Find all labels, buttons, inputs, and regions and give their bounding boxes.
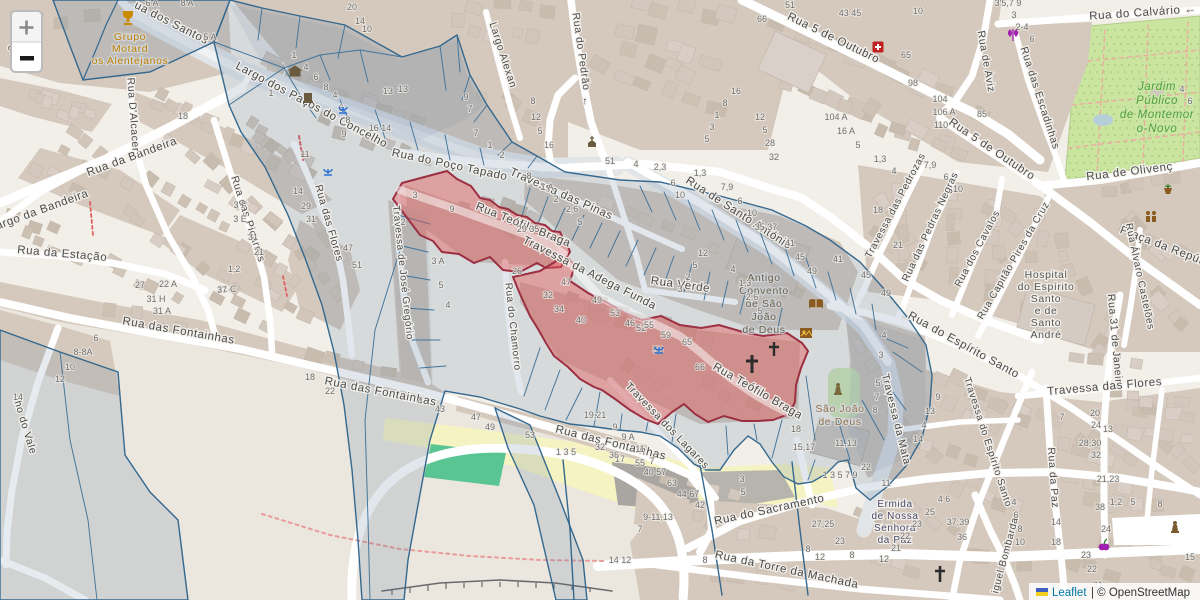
svg-text:7: 7 bbox=[1059, 412, 1064, 422]
svg-text:5: 5 bbox=[438, 280, 443, 290]
svg-text:43 45: 43 45 bbox=[839, 8, 862, 18]
svg-text:os Alentejanos: os Alentejanos bbox=[92, 55, 169, 67]
svg-text:12: 12 bbox=[755, 112, 765, 122]
svg-text:1,2: 1,2 bbox=[228, 264, 241, 274]
svg-text:49: 49 bbox=[881, 288, 891, 298]
svg-text:5: 5 bbox=[1130, 497, 1135, 507]
svg-text:4: 4 bbox=[730, 264, 735, 274]
svg-text:7: 7 bbox=[637, 524, 642, 534]
svg-text:8 A: 8 A bbox=[180, 0, 193, 8]
svg-text:10: 10 bbox=[362, 24, 372, 34]
svg-text:66: 66 bbox=[695, 362, 705, 372]
svg-text:98: 98 bbox=[908, 78, 918, 88]
svg-text:4: 4 bbox=[417, 396, 422, 406]
svg-text:36: 36 bbox=[957, 532, 967, 542]
svg-text:14: 14 bbox=[293, 186, 303, 196]
svg-text:13: 13 bbox=[925, 406, 935, 416]
svg-text:27,25: 27,25 bbox=[812, 519, 835, 529]
svg-text:45: 45 bbox=[861, 270, 871, 280]
svg-text:André: André bbox=[1030, 329, 1061, 341]
svg-text:22: 22 bbox=[1087, 564, 1097, 574]
svg-text:51: 51 bbox=[352, 260, 362, 270]
svg-text:4: 4 bbox=[303, 62, 308, 72]
svg-text:3: 3 bbox=[709, 122, 714, 132]
svg-text:Leaflet: Leaflet bbox=[1052, 587, 1087, 599]
svg-text:31: 31 bbox=[248, 232, 258, 242]
svg-text:66: 66 bbox=[757, 14, 767, 24]
svg-text:31 A: 31 A bbox=[153, 306, 171, 316]
svg-text:16 A: 16 A bbox=[837, 126, 855, 136]
svg-text:1: 1 bbox=[268, 88, 273, 98]
svg-text:de Deus: de Deus bbox=[818, 416, 861, 428]
svg-text:8: 8 bbox=[345, 115, 350, 125]
svg-text:32: 32 bbox=[1091, 450, 1101, 460]
svg-text:1 A: 1 A bbox=[540, 182, 553, 192]
svg-text:4: 4 bbox=[881, 330, 886, 340]
svg-text:21,23: 21,23 bbox=[1097, 474, 1120, 484]
svg-text:do Espírito: do Espírito bbox=[1018, 281, 1075, 293]
svg-text:5: 5 bbox=[577, 217, 582, 227]
svg-text:4: 4 bbox=[332, 90, 337, 100]
svg-text:53: 53 bbox=[525, 430, 535, 440]
svg-text:46: 46 bbox=[625, 318, 635, 328]
svg-text:5: 5 bbox=[537, 126, 542, 136]
svg-text:10: 10 bbox=[747, 208, 757, 218]
svg-text:1: 1 bbox=[487, 140, 492, 150]
svg-text:29 35: 29 35 bbox=[517, 224, 540, 234]
svg-text:6: 6 bbox=[1029, 34, 1034, 44]
svg-text:55: 55 bbox=[644, 320, 654, 330]
svg-text:5: 5 bbox=[875, 378, 880, 388]
svg-text:4: 4 bbox=[1179, 84, 1184, 94]
svg-text:23: 23 bbox=[1081, 550, 1091, 560]
svg-text:47: 47 bbox=[343, 243, 353, 253]
svg-text:e de: e de bbox=[1035, 305, 1058, 317]
svg-text:Grupo: Grupo bbox=[114, 31, 146, 43]
svg-text:10: 10 bbox=[953, 184, 963, 194]
svg-text:21: 21 bbox=[891, 543, 901, 553]
svg-text:40: 40 bbox=[576, 315, 586, 325]
svg-text:41: 41 bbox=[833, 254, 843, 264]
svg-text:32: 32 bbox=[595, 442, 605, 452]
svg-text:16 14: 16 14 bbox=[369, 123, 392, 133]
svg-text:3: 3 bbox=[677, 284, 682, 294]
svg-text:65: 65 bbox=[901, 50, 911, 60]
svg-text:12: 12 bbox=[55, 374, 65, 384]
svg-text:5: 5 bbox=[757, 306, 762, 316]
svg-text:Santo: Santo bbox=[1031, 317, 1061, 329]
svg-text:8: 8 bbox=[530, 96, 535, 106]
svg-text:2,6: 2,6 bbox=[746, 292, 759, 302]
svg-text:6: 6 bbox=[313, 72, 318, 82]
svg-text:2,3: 2,3 bbox=[654, 162, 667, 172]
svg-text:6: 6 bbox=[93, 333, 98, 343]
svg-text:22: 22 bbox=[900, 531, 910, 541]
svg-text:1,3: 1,3 bbox=[874, 154, 887, 164]
svg-text:4: 4 bbox=[1011, 497, 1016, 507]
svg-text:31 H: 31 H bbox=[146, 294, 165, 304]
svg-text:32: 32 bbox=[769, 152, 779, 162]
svg-text:49: 49 bbox=[592, 295, 602, 305]
svg-text:6: 6 bbox=[737, 196, 742, 206]
svg-text:14: 14 bbox=[1051, 517, 1061, 527]
svg-text:1,2: 1,2 bbox=[1110, 497, 1123, 507]
svg-text:3: 3 bbox=[1011, 10, 1016, 20]
svg-text:23: 23 bbox=[835, 536, 845, 546]
svg-text:34: 34 bbox=[554, 304, 564, 314]
svg-text:7,9: 7,9 bbox=[924, 160, 937, 170]
svg-text:9: 9 bbox=[449, 204, 454, 214]
svg-text:24: 24 bbox=[1101, 524, 1111, 534]
svg-text:11: 11 bbox=[881, 478, 890, 488]
svg-text:12: 12 bbox=[815, 552, 825, 562]
svg-text:37: 37 bbox=[217, 285, 227, 295]
svg-text:5: 5 bbox=[704, 134, 709, 144]
svg-text:23: 23 bbox=[912, 519, 922, 529]
svg-text:14 12: 14 12 bbox=[609, 555, 632, 565]
svg-text:Jardim: Jardim bbox=[1137, 81, 1176, 93]
svg-text:4: 4 bbox=[921, 420, 926, 430]
svg-text:51: 51 bbox=[605, 156, 615, 166]
svg-text:9-11,13: 9-11,13 bbox=[643, 512, 673, 522]
svg-text:21: 21 bbox=[893, 240, 903, 250]
svg-text:8: 8 bbox=[702, 555, 707, 565]
svg-text:4: 4 bbox=[891, 166, 896, 176]
svg-text:3'5,7 9: 3'5,7 9 bbox=[995, 0, 1022, 8]
svg-text:104 A: 104 A bbox=[824, 112, 847, 122]
svg-text:51: 51 bbox=[785, 0, 795, 10]
svg-text:14: 14 bbox=[913, 434, 923, 444]
svg-text:110: 110 bbox=[934, 120, 948, 130]
svg-text:Público: Público bbox=[1136, 95, 1178, 107]
svg-text:18: 18 bbox=[791, 424, 801, 434]
svg-text:São João: São João bbox=[815, 403, 864, 415]
svg-text:5: 5 bbox=[855, 140, 860, 150]
svg-text:4 6: 4 6 bbox=[938, 494, 951, 504]
svg-text:1,3: 1,3 bbox=[694, 168, 707, 178]
svg-text:19,21: 19,21 bbox=[584, 410, 607, 420]
svg-text:22 A: 22 A bbox=[159, 279, 177, 289]
svg-text:7: 7 bbox=[467, 104, 472, 114]
svg-text:4: 4 bbox=[633, 159, 638, 169]
svg-text:2,6: 2,6 bbox=[566, 204, 579, 214]
svg-text:18: 18 bbox=[1051, 537, 1061, 547]
svg-text:Hospital: Hospital bbox=[1025, 269, 1068, 281]
svg-text:7: 7 bbox=[473, 128, 478, 138]
svg-text:5 A: 5 A bbox=[203, 32, 216, 42]
svg-text:20: 20 bbox=[347, 2, 357, 12]
svg-text:47: 47 bbox=[471, 412, 481, 422]
svg-text:104: 104 bbox=[932, 94, 947, 104]
svg-text:25: 25 bbox=[925, 507, 935, 517]
svg-text:43: 43 bbox=[435, 404, 445, 414]
svg-text:6: 6 bbox=[943, 172, 948, 182]
svg-text:35 37: 35 37 bbox=[755, 222, 778, 232]
svg-text:João: João bbox=[751, 311, 776, 323]
svg-text:10: 10 bbox=[1015, 537, 1025, 547]
svg-text:8: 8 bbox=[526, 171, 531, 181]
svg-text:32: 32 bbox=[543, 290, 553, 300]
svg-text:27: 27 bbox=[135, 280, 145, 290]
svg-text:6: 6 bbox=[1013, 510, 1018, 520]
svg-text:12: 12 bbox=[531, 112, 541, 122]
svg-text:12: 12 bbox=[879, 554, 889, 564]
svg-text:106 A: 106 A bbox=[932, 107, 955, 117]
svg-text:53: 53 bbox=[610, 308, 620, 318]
svg-text:59: 59 bbox=[661, 330, 671, 340]
svg-text:Santo: Santo bbox=[1031, 293, 1061, 305]
svg-text:9: 9 bbox=[341, 129, 346, 139]
svg-text:45: 45 bbox=[795, 252, 805, 262]
svg-text:65: 65 bbox=[682, 337, 692, 347]
svg-text:Motard: Motard bbox=[112, 43, 148, 55]
svg-text:85: 85 bbox=[977, 109, 987, 119]
svg-text:13: 13 bbox=[1103, 424, 1113, 434]
svg-text:2: 2 bbox=[685, 272, 690, 282]
svg-text:10: 10 bbox=[65, 362, 75, 372]
svg-text:1: 1 bbox=[291, 50, 296, 60]
svg-text:41: 41 bbox=[785, 238, 795, 248]
svg-text:31: 31 bbox=[306, 214, 316, 224]
svg-text:8: 8 bbox=[872, 405, 877, 415]
svg-text:| © OpenStreetMap: | © OpenStreetMap bbox=[1091, 587, 1190, 599]
svg-text:6: 6 bbox=[670, 178, 675, 188]
svg-text:3 E: 3 E bbox=[233, 214, 247, 224]
svg-text:36: 36 bbox=[609, 450, 619, 460]
svg-text:de Montemor: de Montemor bbox=[1120, 109, 1195, 121]
svg-text:5: 5 bbox=[692, 260, 697, 270]
svg-text:47: 47 bbox=[561, 277, 571, 287]
svg-text:28: 28 bbox=[765, 138, 775, 148]
svg-text:18: 18 bbox=[873, 205, 883, 215]
svg-text:8: 8 bbox=[722, 98, 727, 108]
svg-text:44 67: 44 67 bbox=[677, 489, 700, 499]
svg-text:3: 3 bbox=[412, 190, 417, 200]
svg-text:16: 16 bbox=[544, 140, 554, 150]
svg-text:Ermida: Ermida bbox=[877, 499, 912, 510]
svg-text:6: 6 bbox=[1187, 96, 1192, 106]
svg-text:5: 5 bbox=[740, 487, 745, 497]
svg-text:22: 22 bbox=[861, 462, 871, 472]
svg-text:37,39: 37,39 bbox=[947, 517, 970, 527]
svg-text:9 A: 9 A bbox=[621, 432, 634, 442]
svg-text:4: 4 bbox=[445, 300, 450, 310]
svg-text:6 A: 6 A bbox=[145, 0, 158, 8]
svg-text:3 A: 3 A bbox=[431, 256, 444, 266]
svg-text:11: 11 bbox=[635, 444, 644, 454]
svg-text:2: 2 bbox=[499, 150, 504, 160]
svg-text:40 57: 40 57 bbox=[644, 467, 667, 477]
svg-text:18: 18 bbox=[305, 372, 315, 382]
svg-text:1,3: 1,3 bbox=[739, 278, 752, 288]
svg-text:22: 22 bbox=[325, 386, 335, 396]
svg-text:21: 21 bbox=[254, 247, 264, 257]
svg-text:7,9: 7,9 bbox=[721, 182, 734, 192]
svg-text:24: 24 bbox=[1091, 420, 1101, 430]
svg-text:3 F: 3 F bbox=[233, 200, 247, 210]
svg-text:3: 3 bbox=[878, 350, 883, 360]
svg-text:42: 42 bbox=[695, 500, 705, 510]
svg-text:26: 26 bbox=[512, 266, 522, 276]
svg-text:2: 2 bbox=[553, 194, 558, 204]
svg-text:↑: ↑ bbox=[582, 96, 588, 107]
svg-text:11,13: 11,13 bbox=[835, 438, 857, 448]
svg-text:16: 16 bbox=[731, 86, 741, 96]
svg-text:11: 11 bbox=[300, 149, 309, 159]
svg-text:9: 9 bbox=[463, 92, 468, 102]
svg-text:2: 2 bbox=[400, 217, 405, 227]
svg-text:13: 13 bbox=[383, 86, 393, 96]
svg-text:8: 8 bbox=[1157, 499, 1162, 509]
svg-text:10: 10 bbox=[675, 190, 685, 200]
svg-text:13: 13 bbox=[398, 84, 408, 94]
svg-text:8: 8 bbox=[805, 544, 810, 554]
svg-text:15: 15 bbox=[1185, 552, 1195, 562]
svg-text:1: 1 bbox=[714, 110, 719, 120]
svg-text:8: 8 bbox=[1017, 524, 1022, 534]
svg-text:14: 14 bbox=[13, 392, 23, 402]
svg-text:15,17: 15,17 bbox=[793, 442, 816, 452]
svg-text:20: 20 bbox=[1090, 408, 1100, 418]
svg-text:10: 10 bbox=[913, 6, 923, 16]
svg-text:7: 7 bbox=[874, 392, 879, 402]
svg-text:de Deus: de Deus bbox=[742, 324, 785, 336]
svg-text:8-8A: 8-8A bbox=[73, 347, 92, 357]
svg-text:38: 38 bbox=[1095, 502, 1105, 512]
svg-text:9: 9 bbox=[612, 422, 617, 432]
svg-text:12: 12 bbox=[698, 248, 708, 258]
svg-text:8: 8 bbox=[849, 550, 854, 560]
svg-text:2-4: 2-4 bbox=[1015, 22, 1028, 32]
svg-text:1 3 5 7 9: 1 3 5 7 9 bbox=[822, 470, 857, 480]
svg-text:Antigo: Antigo bbox=[747, 272, 780, 284]
svg-text:3: 3 bbox=[739, 474, 744, 484]
svg-text:7: 7 bbox=[649, 456, 654, 466]
svg-text:49: 49 bbox=[807, 266, 817, 276]
svg-text:29: 29 bbox=[301, 201, 311, 211]
svg-text:63: 63 bbox=[667, 478, 677, 488]
svg-text:8: 8 bbox=[323, 82, 328, 92]
svg-text:5: 5 bbox=[762, 125, 767, 135]
svg-text:49: 49 bbox=[485, 422, 495, 432]
svg-text:o-Novo: o-Novo bbox=[1137, 123, 1178, 135]
svg-text:1 3 5: 1 3 5 bbox=[556, 447, 576, 457]
svg-text:28,30: 28,30 bbox=[1079, 438, 1102, 448]
svg-text:9: 9 bbox=[935, 392, 940, 402]
svg-text:18: 18 bbox=[178, 111, 188, 121]
